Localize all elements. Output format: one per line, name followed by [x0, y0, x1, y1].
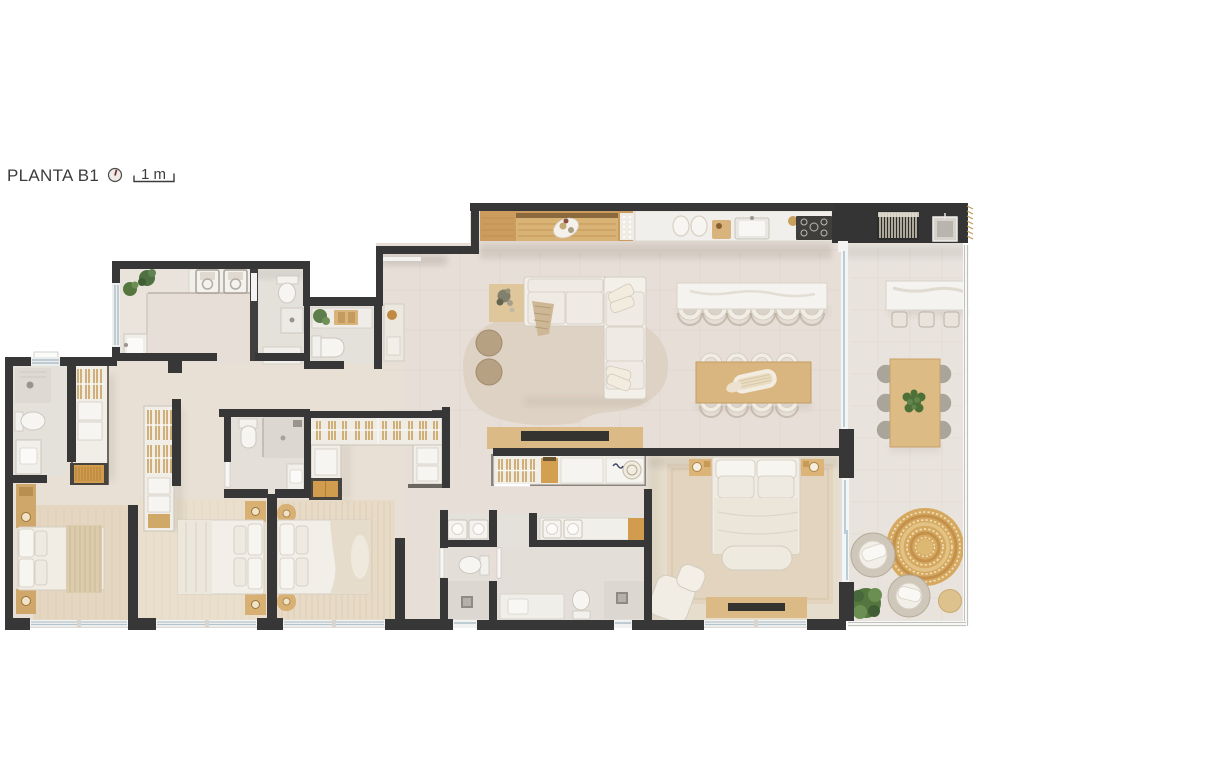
svg-text:PLANTA B1: PLANTA B1	[7, 166, 99, 185]
svg-text:1 m: 1 m	[141, 166, 166, 183]
